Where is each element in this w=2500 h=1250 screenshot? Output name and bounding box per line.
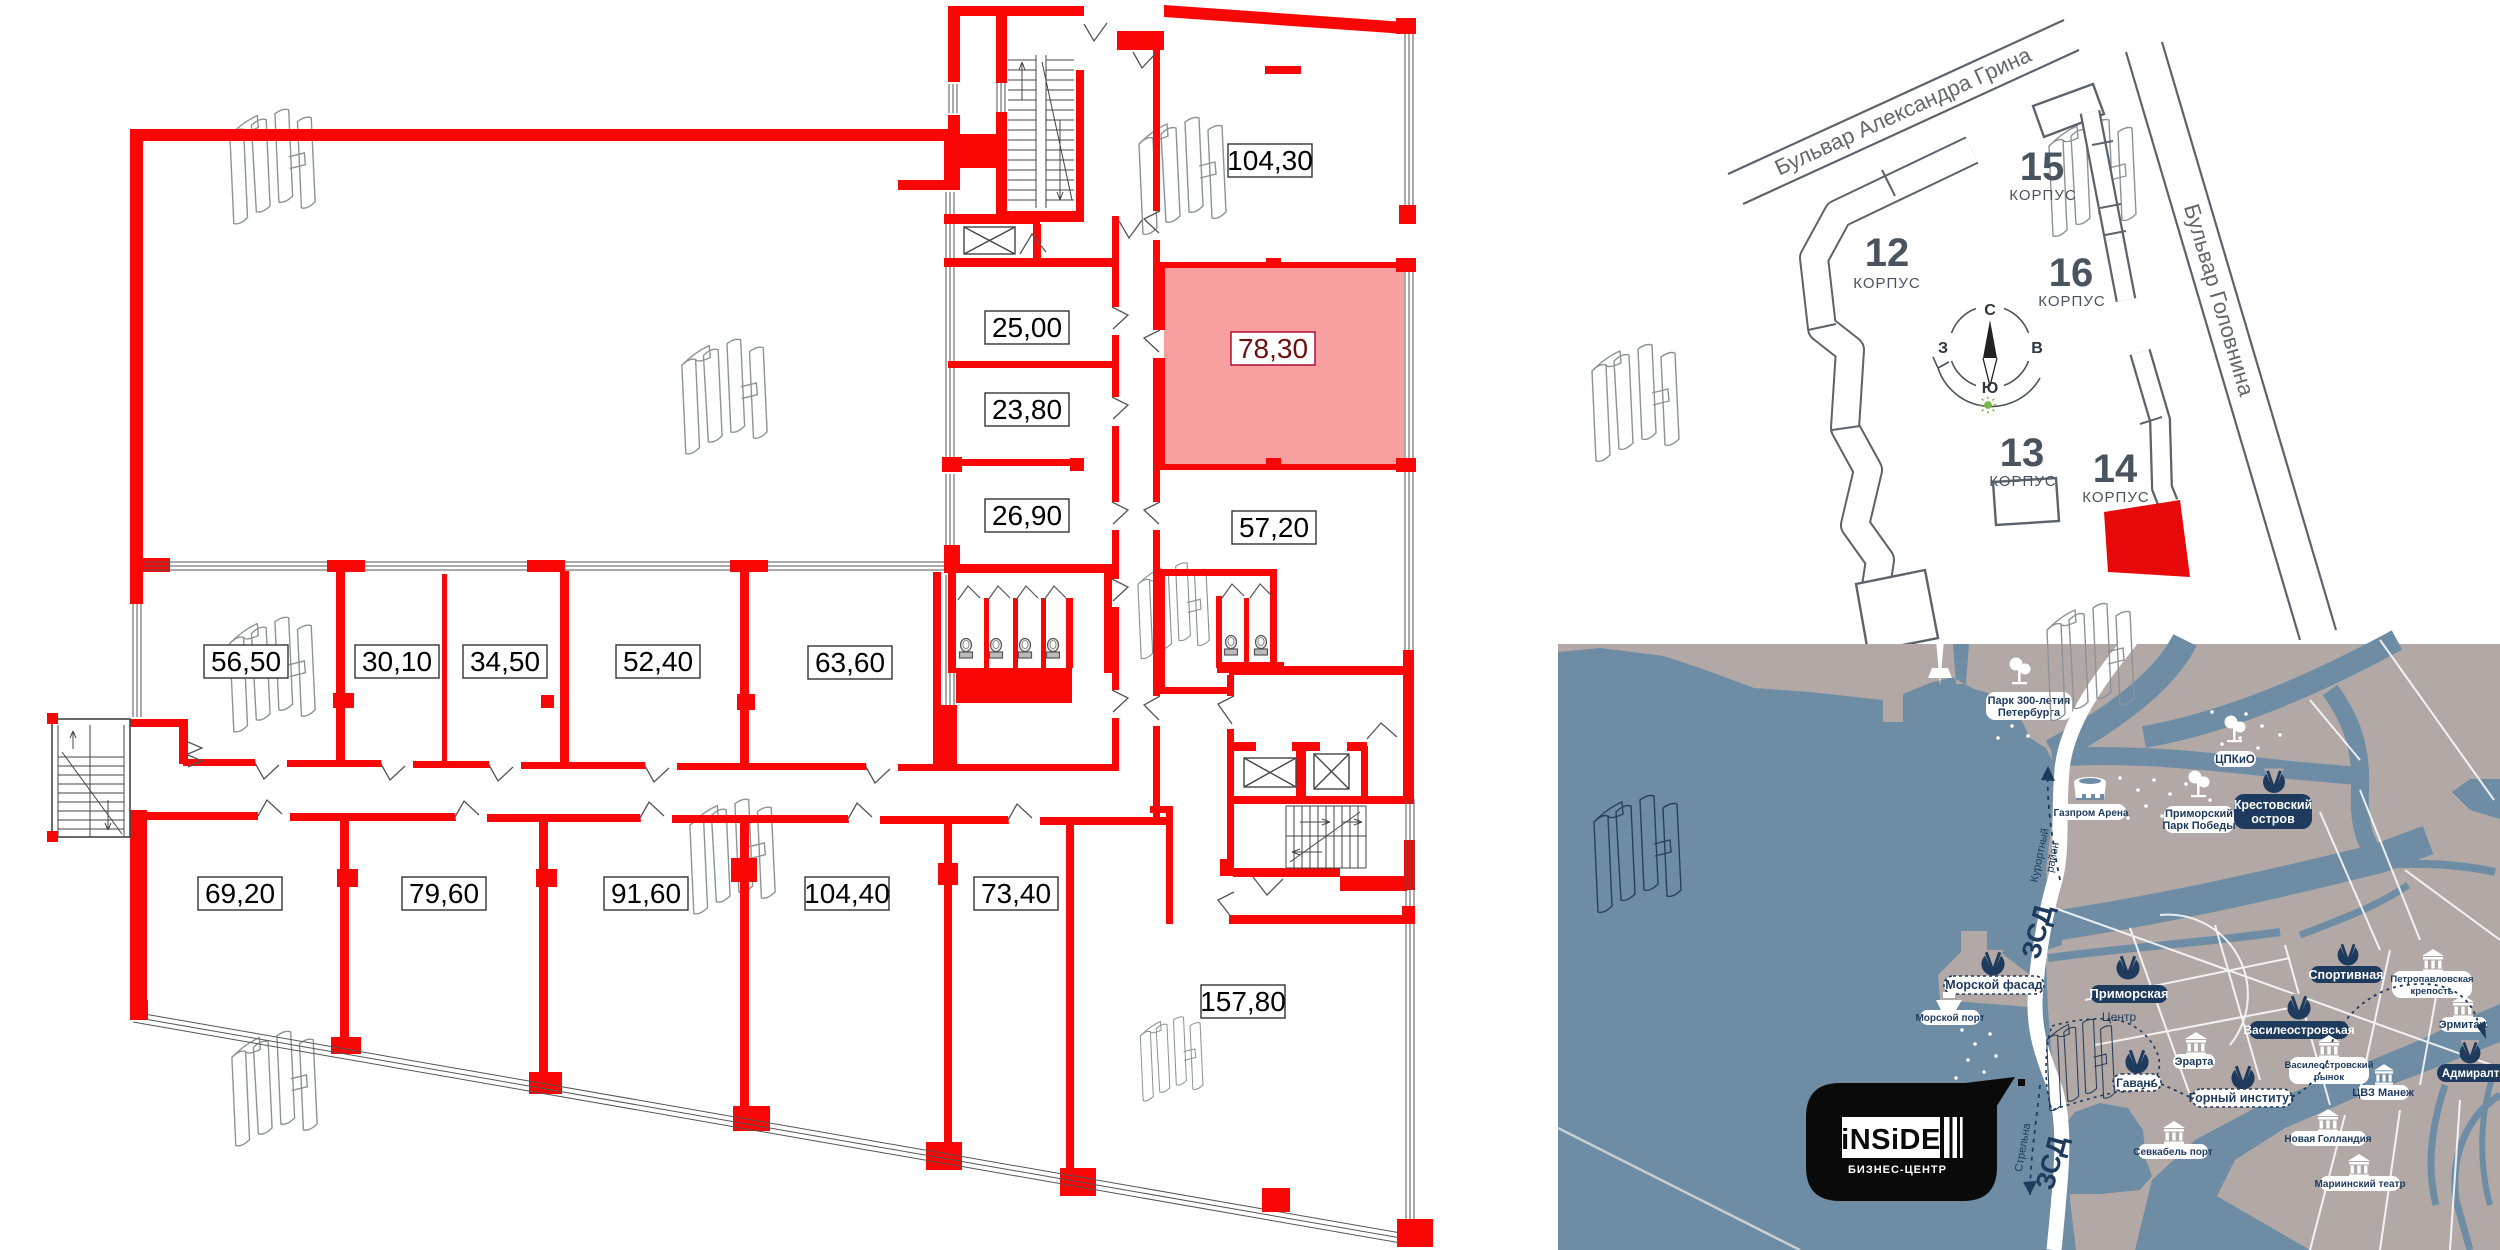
svg-text:Центр: Центр [2102, 1010, 2137, 1024]
svg-text:КОРПУС: КОРПУС [1853, 275, 1920, 292]
svg-text:14: 14 [2093, 447, 2138, 491]
svg-text:Морской порт: Морской порт [1915, 1013, 1984, 1024]
svg-text:Приморская: Приморская [2089, 986, 2168, 1001]
svg-text:52,40: 52,40 [623, 646, 693, 677]
svg-text:Приморский: Приморский [2165, 808, 2233, 820]
svg-text:ЦПКиО: ЦПКиО [2215, 754, 2255, 766]
svg-text:30,10: 30,10 [362, 646, 432, 677]
svg-text:КОРПУС: КОРПУС [2009, 187, 2076, 204]
svg-text:Парк 300-летия: Парк 300-летия [1988, 695, 2071, 707]
svg-text:В: В [2031, 340, 2043, 357]
svg-text:56,50: 56,50 [211, 646, 281, 677]
svg-text:Василеостровский: Василеостровский [2284, 1060, 2373, 1071]
svg-text:остров: остров [2251, 812, 2295, 826]
svg-text:Спортивная: Спортивная [2309, 968, 2384, 982]
svg-text:Мариинский театр: Мариинский театр [2314, 1179, 2405, 1190]
svg-text:73,40: 73,40 [981, 878, 1051, 909]
svg-text:Эрарта: Эрарта [2175, 1056, 2215, 1068]
svg-text:26,90: 26,90 [992, 500, 1062, 531]
svg-text:15: 15 [2020, 145, 2065, 189]
svg-text:Василеостровская: Василеостровская [2243, 1023, 2354, 1037]
svg-text:Ю: Ю [1982, 380, 1999, 397]
svg-text:157,80: 157,80 [1200, 986, 1286, 1017]
svg-text:69,20: 69,20 [205, 878, 275, 909]
svg-text:З: З [1938, 340, 1948, 357]
svg-text:крепость: крепость [2410, 986, 2453, 997]
svg-text:КОРПУС: КОРПУС [2038, 293, 2105, 310]
svg-text:Крестовский: Крестовский [2234, 798, 2313, 812]
svg-text:12: 12 [1865, 231, 1910, 275]
svg-text:Севкабель порт: Севкабель порт [2133, 1146, 2213, 1158]
svg-text:91,60: 91,60 [611, 878, 681, 909]
svg-text:79,60: 79,60 [409, 878, 479, 909]
svg-text:ЦВЗ Манеж: ЦВЗ Манеж [2352, 1087, 2414, 1099]
svg-text:16: 16 [2049, 251, 2094, 295]
svg-text:78,30: 78,30 [1238, 333, 1308, 364]
svg-text:Морской фасад: Морской фасад [1945, 978, 2042, 992]
svg-text:Парк Победы: Парк Победы [2162, 820, 2235, 832]
svg-text:Петропавловская: Петропавловская [2390, 974, 2473, 985]
svg-text:23,80: 23,80 [992, 394, 1062, 425]
svg-text:104,40: 104,40 [804, 878, 890, 909]
svg-text:Гавань: Гавань [2116, 1076, 2158, 1090]
svg-text:34,50: 34,50 [470, 646, 540, 677]
svg-text:КОРПУС: КОРПУС [1989, 473, 2056, 490]
svg-text:104,30: 104,30 [1227, 145, 1313, 176]
svg-text:Адмиралтейская: Адмиралтейская [2442, 1068, 2500, 1080]
svg-text:Горный институт: Горный институт [2189, 1091, 2296, 1105]
svg-text:КОРПУС: КОРПУС [2082, 489, 2149, 506]
svg-text:Новая Голландия: Новая Голландия [2284, 1134, 2371, 1145]
svg-text:С: С [1984, 302, 1996, 319]
svg-text:БИЗНЕС-ЦЕНТР: БИЗНЕС-ЦЕНТР [1848, 1164, 1947, 1176]
svg-text:Газпром Арена: Газпром Арена [2054, 808, 2129, 819]
svg-text:57,20: 57,20 [1239, 512, 1309, 543]
svg-text:13: 13 [2000, 431, 2045, 475]
svg-text:63,60: 63,60 [815, 647, 885, 678]
svg-text:25,00: 25,00 [992, 312, 1062, 343]
svg-text:iNSiDE: iNSiDE [1841, 1124, 1941, 1156]
